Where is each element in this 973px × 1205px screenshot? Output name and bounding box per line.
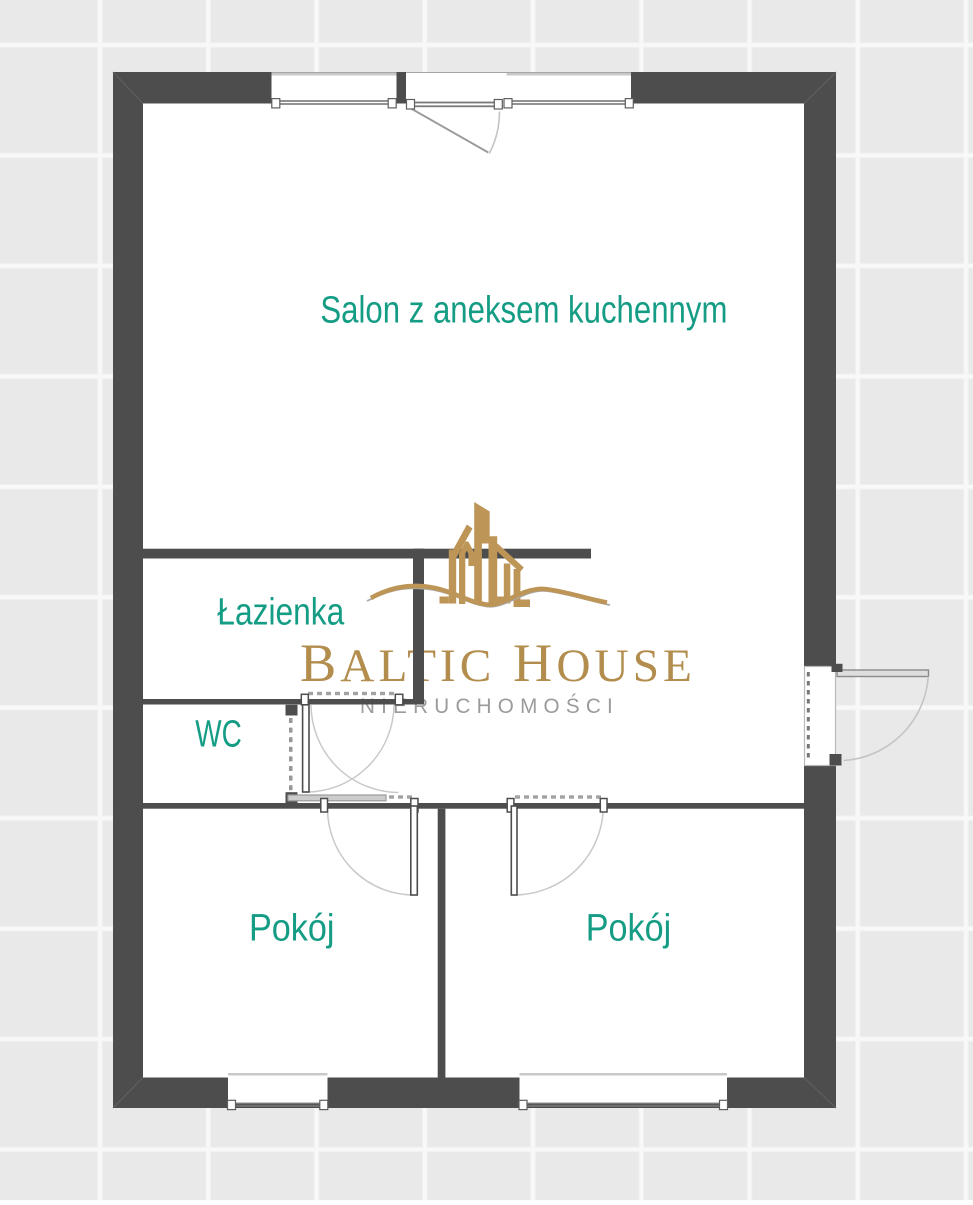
svg-text:Pokój: Pokój (586, 908, 672, 950)
svg-text:WC: WC (195, 714, 242, 756)
svg-text:Salon z aneksem kuchennym: Salon z aneksem kuchennym (320, 290, 727, 332)
svg-text:Pokój: Pokój (249, 908, 335, 950)
svg-text:Łazienka: Łazienka (217, 592, 345, 634)
svg-text:BALTIC HOUSE: BALTIC HOUSE (300, 633, 696, 693)
